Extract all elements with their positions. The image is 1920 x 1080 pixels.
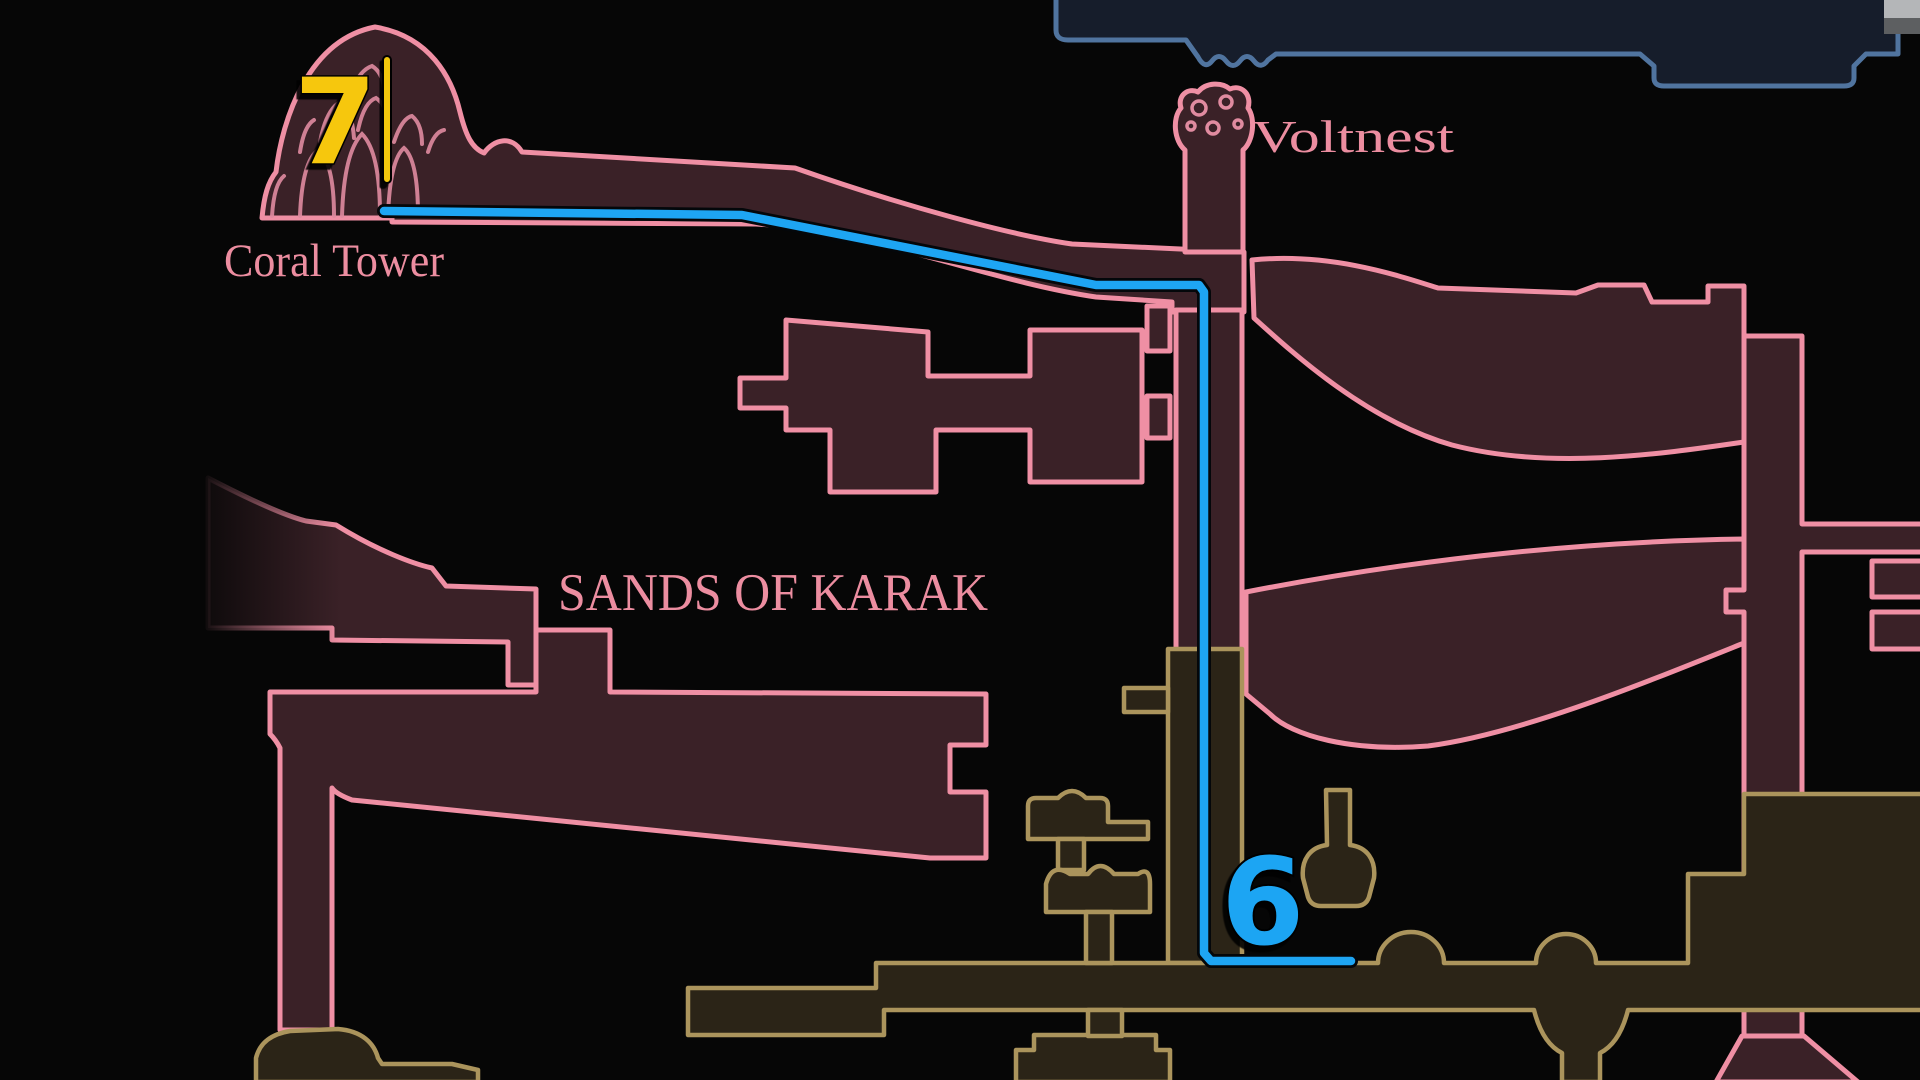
- navy-room-main: [1056, 0, 1898, 86]
- right-column-base: [1716, 1036, 1858, 1080]
- small-room-lower: [1147, 396, 1170, 438]
- middle-room-complex: [740, 320, 1142, 492]
- olive-shaft-tab: [1124, 688, 1168, 712]
- right-upper-room: [1252, 258, 1744, 458]
- label-coral-tower: Coral Tower: [224, 235, 444, 287]
- olive-stem-b: [1086, 912, 1112, 963]
- gray-corner-block: [1884, 0, 1920, 34]
- label-voltnest: Voltnest: [1252, 111, 1454, 162]
- olive-room-a: [1028, 791, 1148, 839]
- right-edge-room-b: [1872, 612, 1920, 649]
- olive-stem-c: [1088, 1010, 1122, 1036]
- olive-corner-room: [256, 1029, 478, 1080]
- marker-7-tick[interactable]: [383, 56, 391, 183]
- olive-stem-a: [1058, 839, 1084, 870]
- small-room-upper: [1147, 306, 1170, 351]
- marker-6[interactable]: 6: [1221, 834, 1305, 973]
- right-edge-room-a: [1872, 561, 1920, 597]
- label-sands-of-karak: SANDS OF KARAK: [558, 564, 988, 622]
- olive-room-c: [1016, 1035, 1170, 1080]
- pink-rooms: [208, 27, 1920, 1080]
- olive-goblet: [1303, 790, 1375, 906]
- game-map[interactable]: Coral Tower Voltnest SANDS OF KARAK 7 6: [0, 0, 1920, 1080]
- left-faded-room: [208, 478, 536, 685]
- navy-rooms: [1056, 0, 1898, 86]
- marker-7[interactable]: 7: [294, 54, 377, 192]
- right-lower-room: [1246, 539, 1744, 747]
- olive-room-b: [1046, 866, 1150, 912]
- voltnest-tower: [1175, 84, 1252, 252]
